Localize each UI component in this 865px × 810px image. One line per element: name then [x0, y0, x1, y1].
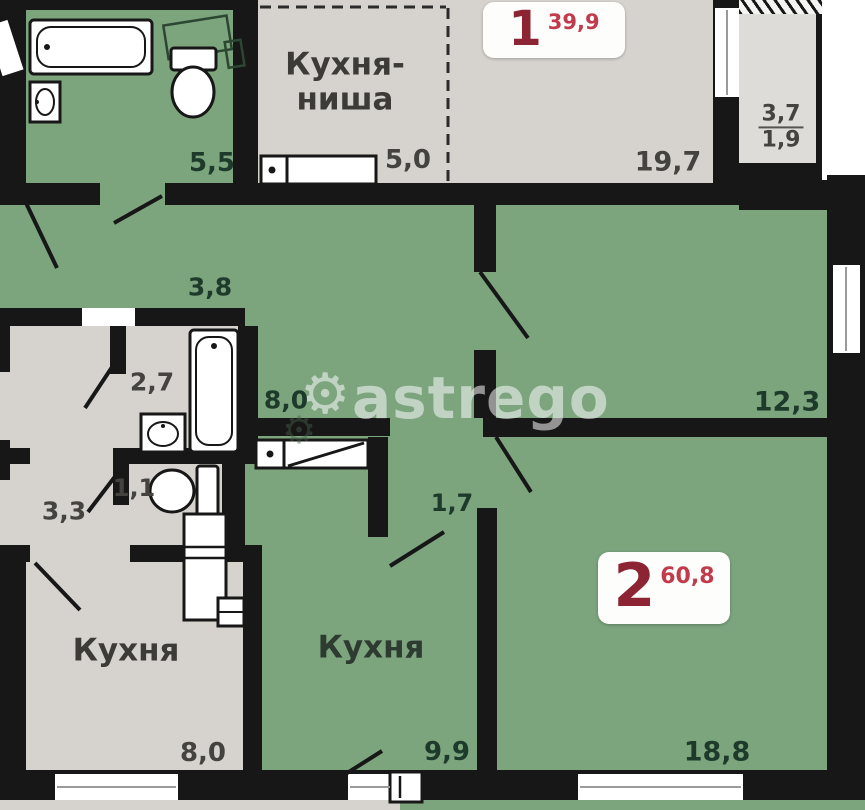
area-label-hall-38: 3,8: [188, 273, 232, 302]
area-label-room-123: 12,3: [754, 387, 821, 418]
wall: [26, 0, 245, 10]
wall: [739, 180, 827, 210]
window: [348, 774, 392, 800]
area-label-room-80: 8,0: [264, 386, 308, 415]
room-label-kitchen-left: Кухня: [73, 634, 180, 669]
room-label-kitchen-mid: Кухня: [318, 631, 425, 666]
wall: [135, 308, 245, 326]
wall-balcony-edge: [816, 0, 822, 168]
room-label-kitchen-niche: Кухня-ниша: [265, 47, 425, 116]
edge-strip-gray: [0, 800, 400, 810]
hall-door-gap: [0, 205, 26, 308]
wall: [165, 183, 740, 205]
wall: [130, 545, 245, 562]
balcony-window-hatch: [739, 0, 822, 14]
window: [55, 774, 178, 800]
wall: [483, 418, 865, 437]
edge-strip-green: [400, 800, 865, 810]
area-label-room-188: 18,8: [684, 737, 751, 768]
apartment-area: 39,9: [548, 12, 600, 33]
wall-stub: [0, 326, 10, 372]
wall: [368, 437, 388, 537]
apartment-1-badge: 1 39,9: [483, 2, 625, 58]
area-label-bath-27: 2,7: [130, 368, 174, 397]
window: [578, 774, 743, 800]
room-80-and-123: [245, 200, 827, 418]
wall: [245, 418, 390, 436]
wall: [222, 464, 245, 545]
wall: [0, 308, 82, 326]
wall-stub: [474, 200, 496, 272]
wall: [243, 545, 262, 775]
wall-stub: [0, 440, 10, 480]
wall: [113, 448, 245, 464]
apartment-2-badge: 2 60,8: [598, 552, 730, 624]
area-label-corridor-17: 1,7: [431, 489, 474, 517]
wall: [477, 508, 497, 772]
apartment-area: 60,8: [660, 566, 714, 588]
wall-stub: [110, 326, 126, 374]
area-label-kitchen-niche: 5,0: [385, 145, 431, 175]
window: [833, 265, 860, 353]
wall: [26, 183, 100, 205]
wall: [238, 326, 258, 464]
floor-plan: ⚙ ⚙ astrego 5,5 Кухня-ниша 5,0 19,7 3,7 …: [0, 0, 865, 810]
area-label-hall-33: 3,3: [42, 497, 86, 526]
window: [715, 8, 739, 97]
area-label-balcony: 3,7 1,9: [759, 102, 804, 151]
area-label-living-197: 19,7: [635, 147, 702, 178]
area-label-wc-11: 1,1: [113, 474, 156, 502]
area-label-kitchen-mid: 9,9: [424, 737, 470, 767]
area-label-bath-55: 5,5: [189, 148, 235, 178]
wall: [0, 560, 26, 800]
apartment-number: 2: [613, 556, 655, 616]
area-label-kitchen-left: 8,0: [180, 738, 226, 768]
wall: [233, 0, 258, 183]
apartment-number: 1: [508, 5, 541, 53]
wall-stub: [474, 350, 496, 418]
